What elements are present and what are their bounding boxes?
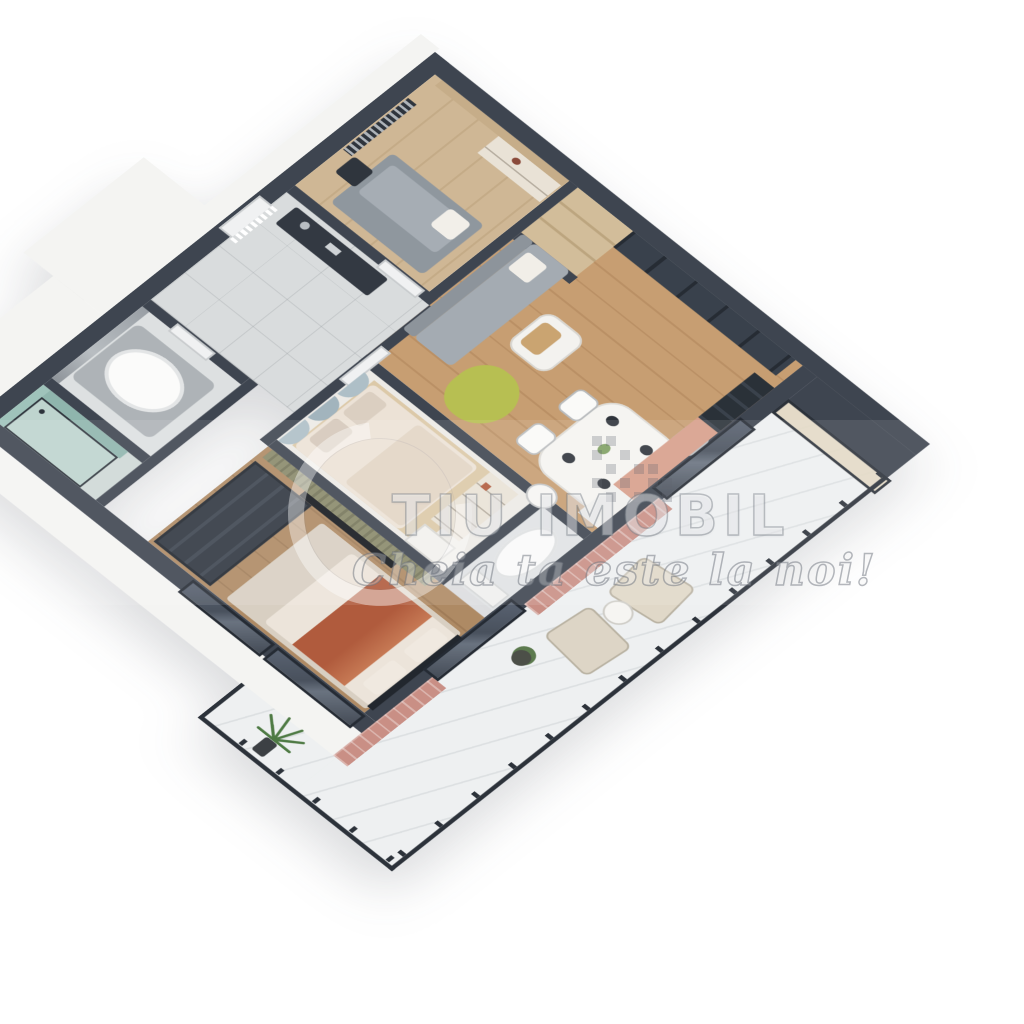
isometric-apartment-plan (0, 52, 972, 903)
floor-plan-render: TIU IMOBIL Cheia ta este la noi! (0, 0, 1024, 1024)
